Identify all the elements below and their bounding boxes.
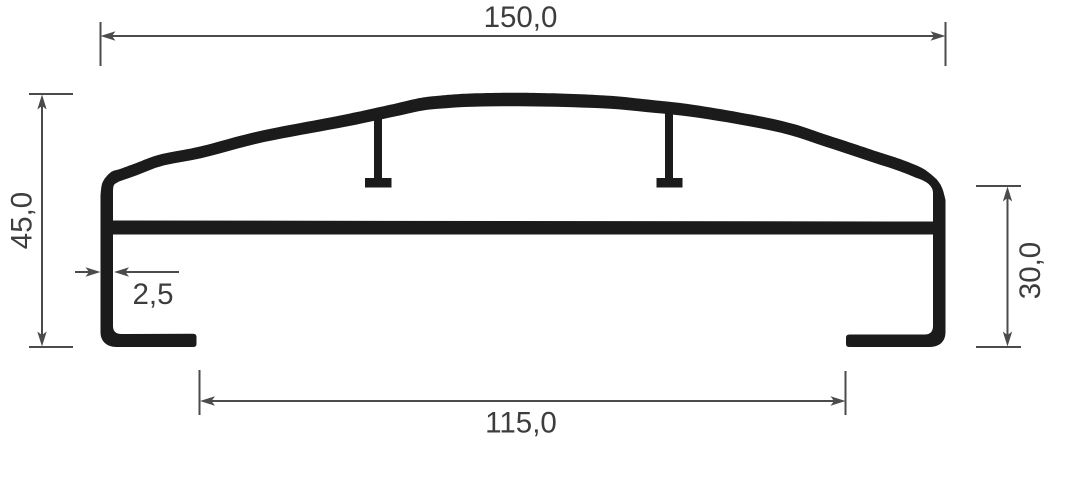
svg-text:150,0: 150,0: [484, 1, 558, 34]
svg-text:30,0: 30,0: [1014, 242, 1047, 299]
svg-text:45,0: 45,0: [6, 192, 39, 249]
svg-text:2,5: 2,5: [132, 278, 173, 311]
svg-text:115,0: 115,0: [485, 407, 557, 440]
